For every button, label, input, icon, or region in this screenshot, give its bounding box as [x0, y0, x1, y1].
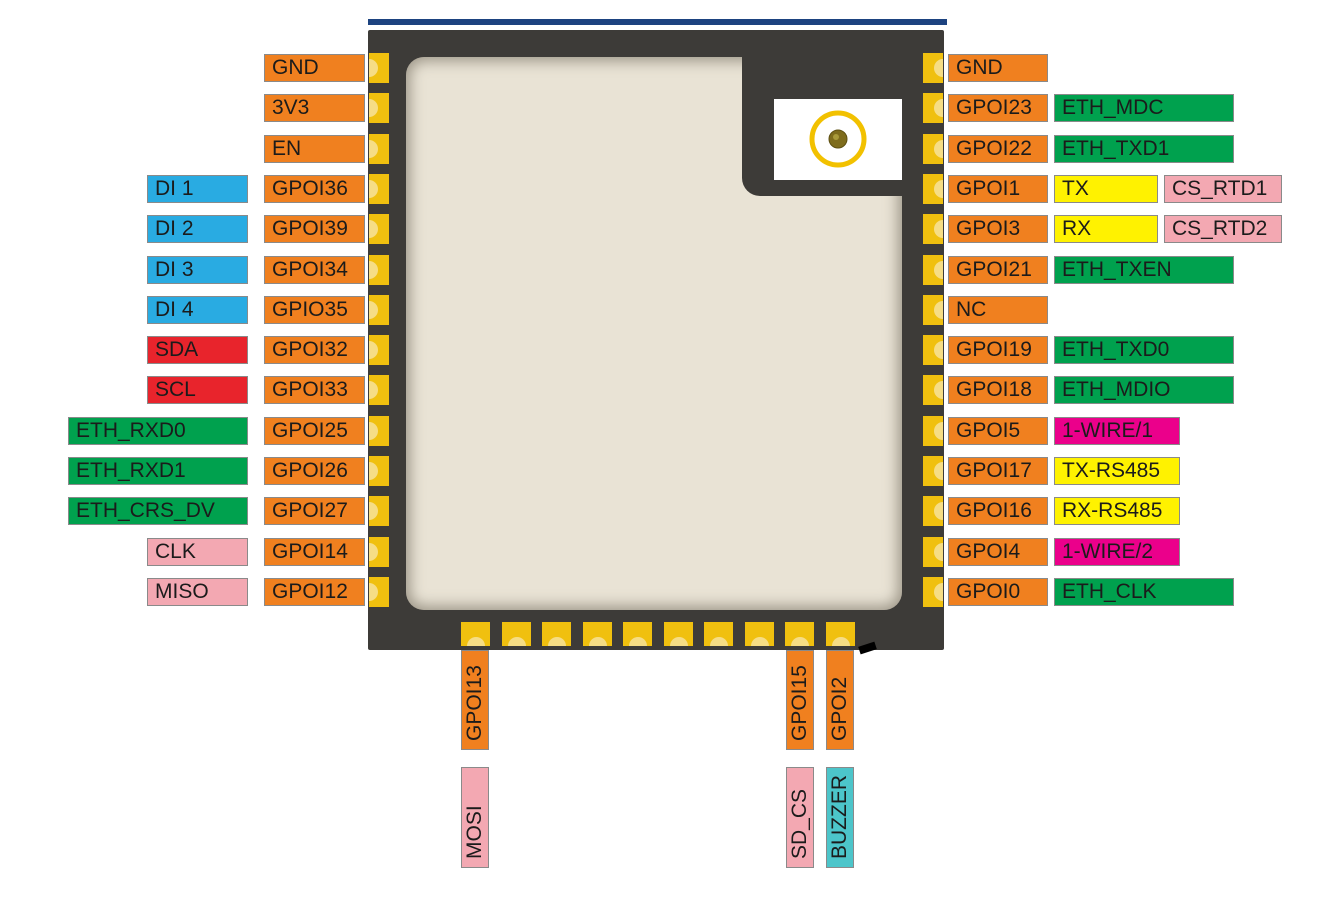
pin-pad — [923, 53, 943, 83]
function-label: ETH_RXD0 — [68, 417, 248, 445]
pad-castellation — [369, 261, 378, 279]
pin-pad — [461, 622, 490, 646]
pad-castellation — [369, 59, 378, 77]
gpio-label: GPOI3 — [948, 215, 1048, 243]
pin-pad — [369, 93, 389, 123]
antenna-connector — [774, 99, 902, 180]
pad-castellation — [934, 583, 943, 601]
pad-castellation — [369, 301, 378, 319]
pad-castellation — [934, 502, 943, 520]
gpio-label: GPOI23 — [948, 94, 1048, 122]
gpio-label: GND — [948, 54, 1048, 82]
gpio-label: GPOI33 — [264, 376, 365, 404]
function-label: 1-WIRE/2 — [1054, 538, 1180, 566]
function-label: ETH_TXEN — [1054, 256, 1234, 284]
function-label: BUZZER — [826, 767, 854, 868]
pin-pad — [369, 577, 389, 607]
gpio-label: GPOI12 — [264, 578, 365, 606]
pad-castellation — [508, 637, 526, 646]
gpio-label: EN — [264, 135, 365, 163]
function-label: ETH_CRS_DV — [68, 497, 248, 525]
gpio-label: GPOI39 — [264, 215, 365, 243]
function-label: MISO — [147, 578, 248, 606]
function-label: ETH_RXD1 — [68, 457, 248, 485]
pin-pad — [369, 295, 389, 325]
pad-castellation — [589, 637, 607, 646]
function-label: TX — [1054, 175, 1158, 203]
pin-pad — [923, 255, 943, 285]
function-label: CLK — [147, 538, 248, 566]
gpio-label: GPOI19 — [948, 336, 1048, 364]
function-label: RX — [1054, 215, 1158, 243]
pad-castellation — [629, 637, 647, 646]
pin-pad — [923, 577, 943, 607]
pin-pad — [369, 456, 389, 486]
pin-pad — [923, 537, 943, 567]
pin-pad — [785, 622, 814, 646]
pad-castellation — [934, 381, 943, 399]
antenna-connector-icon — [774, 99, 902, 180]
pad-castellation — [934, 341, 943, 359]
pad-castellation — [369, 99, 378, 117]
pin-pad — [923, 375, 943, 405]
gpio-label: GPOI21 — [948, 256, 1048, 284]
gpio-label: GPOI17 — [948, 457, 1048, 485]
pin-pad — [369, 214, 389, 244]
pad-castellation — [832, 637, 850, 646]
gpio-label: GPOI36 — [264, 175, 365, 203]
function-label: SD_CS — [786, 767, 814, 868]
pin-pad — [923, 295, 943, 325]
function-label: DI 1 — [147, 175, 248, 203]
pad-castellation — [934, 140, 943, 158]
function-label: DI 4 — [147, 296, 248, 324]
function-label: RX-RS485 — [1054, 497, 1180, 525]
pad-castellation — [934, 180, 943, 198]
gpio-label: GPOI4 — [948, 538, 1048, 566]
function-label: SCL — [147, 376, 248, 404]
gpio-label: GPOI2 — [826, 650, 854, 750]
pad-castellation — [369, 341, 378, 359]
function-label: DI 2 — [147, 215, 248, 243]
pad-castellation — [791, 637, 809, 646]
pin-pad — [923, 496, 943, 526]
function-label: ETH_MDIO — [1054, 376, 1234, 404]
pad-castellation — [369, 462, 378, 480]
pad-castellation — [934, 99, 943, 117]
pad-castellation — [934, 301, 943, 319]
pinout-diagram: GND3V3ENGPOI36DI 1GPOI39DI 2GPOI34DI 3GP… — [0, 0, 1328, 914]
function-label: DI 3 — [147, 256, 248, 284]
pin-pad — [369, 496, 389, 526]
gpio-label: GPOI25 — [264, 417, 365, 445]
pad-castellation — [670, 637, 688, 646]
gpio-label: GPOI26 — [264, 457, 365, 485]
pad-castellation — [934, 220, 943, 238]
pin-pad — [369, 537, 389, 567]
pin-pad — [923, 335, 943, 365]
pin-pad — [623, 622, 652, 646]
pad-castellation — [369, 543, 378, 561]
pin-pad — [923, 416, 943, 446]
pad-castellation — [934, 422, 943, 440]
gpio-label: GPOI18 — [948, 376, 1048, 404]
pin-pad — [664, 622, 693, 646]
function-label: ETH_TXD1 — [1054, 135, 1234, 163]
pad-castellation — [548, 637, 566, 646]
gpio-label: GPOI15 — [786, 650, 814, 750]
gpio-label: GPOI22 — [948, 135, 1048, 163]
pad-castellation — [934, 543, 943, 561]
gpio-label: GPOI1 — [948, 175, 1048, 203]
pin-pad — [826, 622, 855, 646]
gpio-label: GPOI34 — [264, 256, 365, 284]
gpio-label: GPOI14 — [264, 538, 365, 566]
gpio-label: 3V3 — [264, 94, 365, 122]
pad-castellation — [934, 59, 943, 77]
pin-pad — [704, 622, 733, 646]
gpio-label: GPOI0 — [948, 578, 1048, 606]
pin-pad — [745, 622, 774, 646]
pin-pad — [923, 456, 943, 486]
pin-pad — [369, 174, 389, 204]
pin-pad — [923, 174, 943, 204]
pad-castellation — [369, 140, 378, 158]
function-label: 1-WIRE/1 — [1054, 417, 1180, 445]
pad-castellation — [369, 220, 378, 238]
gpio-label: GPOI27 — [264, 497, 365, 525]
gpio-label: GPOI5 — [948, 417, 1048, 445]
pad-castellation — [369, 583, 378, 601]
pin-pad — [502, 622, 531, 646]
function-label: CS_RTD1 — [1164, 175, 1282, 203]
pin-pad — [542, 622, 571, 646]
gpio-label: GND — [264, 54, 365, 82]
gpio-label: GPOI16 — [948, 497, 1048, 525]
pin-pad — [369, 375, 389, 405]
pad-castellation — [369, 502, 378, 520]
pad-castellation — [369, 180, 378, 198]
function-label: CS_RTD2 — [1164, 215, 1282, 243]
pad-castellation — [710, 637, 728, 646]
pad-castellation — [934, 462, 943, 480]
pin-pad — [923, 93, 943, 123]
pin-pad — [583, 622, 612, 646]
function-label: SDA — [147, 336, 248, 364]
module-top-bar — [368, 19, 947, 25]
pin-pad — [369, 335, 389, 365]
pin-pad — [369, 416, 389, 446]
pad-castellation — [369, 381, 378, 399]
function-label: ETH_MDC — [1054, 94, 1234, 122]
pin-pad — [923, 214, 943, 244]
pin-pad — [369, 53, 389, 83]
gpio-label: GPOI32 — [264, 336, 365, 364]
gpio-label: GPIO35 — [264, 296, 365, 324]
function-label: TX-RS485 — [1054, 457, 1180, 485]
gpio-label: GPOI13 — [461, 650, 489, 750]
pad-castellation — [934, 261, 943, 279]
pad-castellation — [467, 637, 485, 646]
pad-castellation — [369, 422, 378, 440]
pin-pad — [923, 134, 943, 164]
function-label: ETH_TXD0 — [1054, 336, 1234, 364]
function-label: ETH_CLK — [1054, 578, 1234, 606]
function-label: MOSI — [461, 767, 489, 868]
pin-pad — [369, 134, 389, 164]
gpio-label: NC — [948, 296, 1048, 324]
pad-castellation — [751, 637, 769, 646]
pin-pad — [369, 255, 389, 285]
